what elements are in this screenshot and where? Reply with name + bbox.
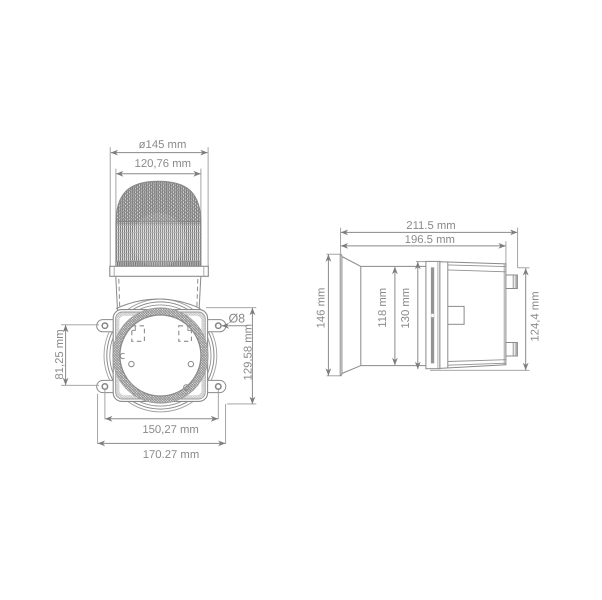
svg-text:81,25 mm: 81,25 mm <box>54 329 66 379</box>
svg-text:196.5 mm: 196.5 mm <box>405 234 455 246</box>
svg-text:170.27 mm: 170.27 mm <box>143 449 200 461</box>
svg-text:Ø8: Ø8 <box>228 311 245 325</box>
svg-text:129,58 mm: 129,58 mm <box>243 324 255 381</box>
svg-text:120,76 mm: 120,76 mm <box>135 158 192 170</box>
svg-text:124,4 mm: 124,4 mm <box>530 291 542 341</box>
svg-text:150,27 mm: 150,27 mm <box>142 424 199 436</box>
svg-text:211.5 mm: 211.5 mm <box>406 220 455 232</box>
svg-text:ø145 mm: ø145 mm <box>139 139 187 151</box>
svg-text:130 mm: 130 mm <box>400 288 412 329</box>
svg-text:118 mm: 118 mm <box>377 288 389 328</box>
svg-text:146 mm: 146 mm <box>316 288 328 329</box>
